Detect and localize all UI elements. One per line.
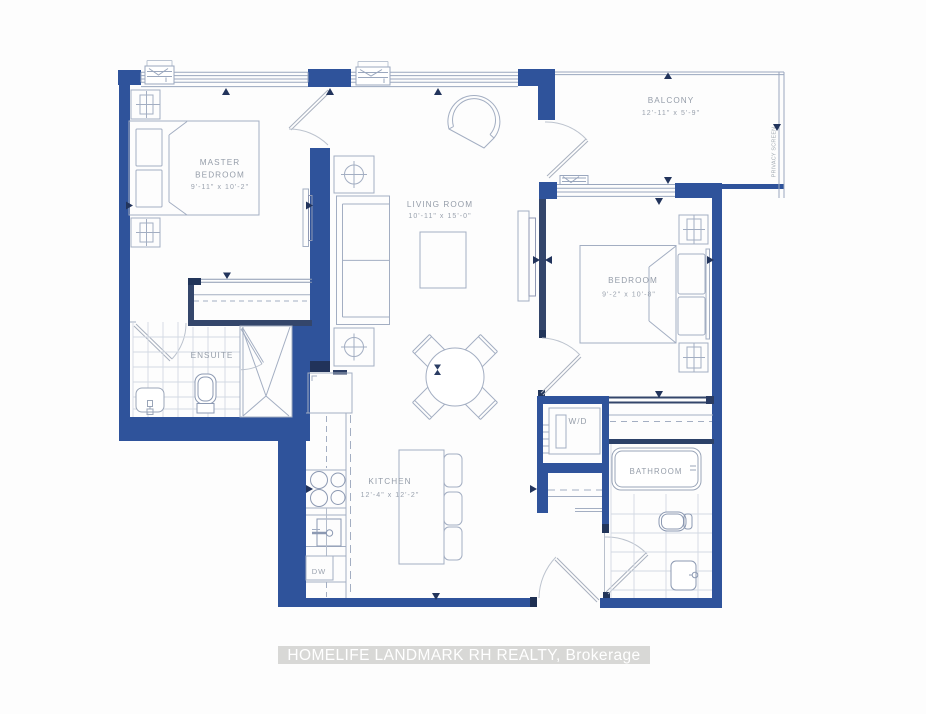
svg-text:DW: DW: [312, 567, 327, 576]
svg-text:10'-11" x 15'-0": 10'-11" x 15'-0": [408, 213, 471, 220]
svg-text:12'-4" x 12'-2": 12'-4" x 12'-2": [361, 492, 420, 499]
svg-text:12'-11" x 5'-9": 12'-11" x 5'-9": [642, 110, 700, 117]
svg-text:LIVING ROOM: LIVING ROOM: [407, 200, 473, 209]
svg-text:PRIVACY SCREEN: PRIVACY SCREEN: [772, 127, 778, 178]
svg-text:KITCHEN: KITCHEN: [368, 477, 411, 486]
svg-text:9'-11" x 10'-2": 9'-11" x 10'-2": [191, 184, 249, 191]
svg-text:ENSUITE: ENSUITE: [191, 351, 234, 360]
svg-text:9'-2" x 10'-8": 9'-2" x 10'-8": [602, 292, 656, 299]
svg-text:BALCONY: BALCONY: [648, 96, 694, 105]
svg-text:MASTER: MASTER: [200, 158, 240, 167]
svg-text:BATHROOM: BATHROOM: [630, 467, 683, 476]
svg-text:HOMELIFE LANDMARK RH REALTY, B: HOMELIFE LANDMARK RH REALTY, Brokerage: [287, 647, 640, 664]
svg-text:BEDROOM: BEDROOM: [195, 171, 245, 180]
svg-text:BEDROOM: BEDROOM: [608, 276, 658, 285]
svg-text:W/D: W/D: [568, 417, 587, 426]
